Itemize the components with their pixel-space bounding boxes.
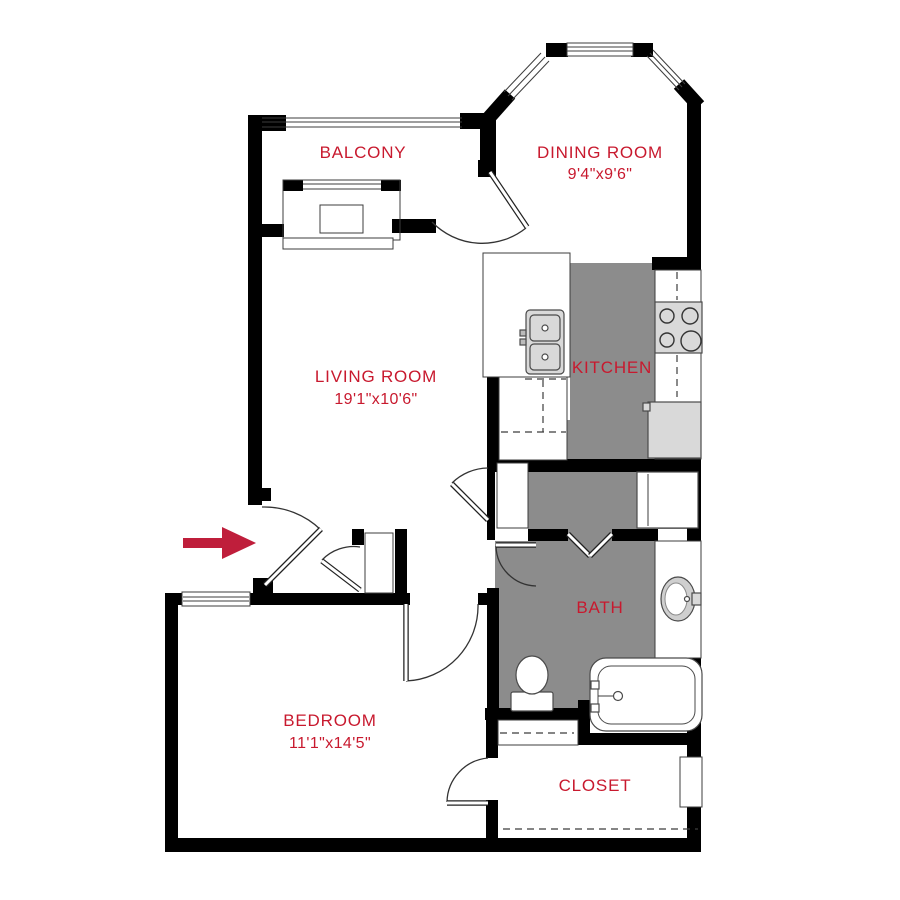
- living-label: LIVING ROOM: [315, 367, 437, 386]
- closet-label: CLOSET: [559, 776, 632, 795]
- bay-window-top: [567, 43, 633, 56]
- balcony-door: [432, 172, 527, 243]
- bath-label: BATH: [576, 598, 623, 617]
- refrigerator: [643, 402, 701, 458]
- dining-label: DINING ROOM: [537, 143, 663, 162]
- balcony-railing: [262, 118, 462, 127]
- floor-plan-drawing: BALCONY DINING ROOM 9'4"x9'6" LIVING ROO…: [0, 0, 900, 900]
- living-dims: 19'1"x10'6": [334, 391, 417, 408]
- hall-door: [452, 468, 488, 520]
- bedroom-dims: 11'1"x14'5": [289, 735, 371, 752]
- entry-arrow: [183, 527, 256, 559]
- bedroom-door: [406, 604, 478, 681]
- kitchen-double-sink: [520, 310, 564, 374]
- entry-closet-interior: [365, 533, 393, 593]
- balcony-label: BALCONY: [320, 143, 407, 162]
- closet-door: [447, 758, 488, 803]
- kitchen-counter-lower: [499, 377, 567, 460]
- bathtub: [590, 658, 702, 731]
- open-door-panel: [497, 463, 528, 528]
- bay-window-right: [647, 50, 685, 90]
- bedroom-label: BEDROOM: [283, 711, 376, 730]
- front-door: [262, 507, 321, 585]
- kitchen-label: KITCHEN: [572, 358, 652, 377]
- entry-closet-door: [322, 547, 360, 590]
- closet-shelf: [680, 757, 702, 807]
- washer-dryer: [637, 472, 698, 528]
- bay-window-left: [504, 53, 549, 100]
- dining-dims: 9'4"x9'6": [568, 166, 633, 183]
- stove-4-burner: [655, 302, 702, 353]
- floor-plan: BALCONY DINING ROOM 9'4"x9'6" LIVING ROO…: [0, 0, 900, 900]
- bedroom-window: [182, 592, 250, 606]
